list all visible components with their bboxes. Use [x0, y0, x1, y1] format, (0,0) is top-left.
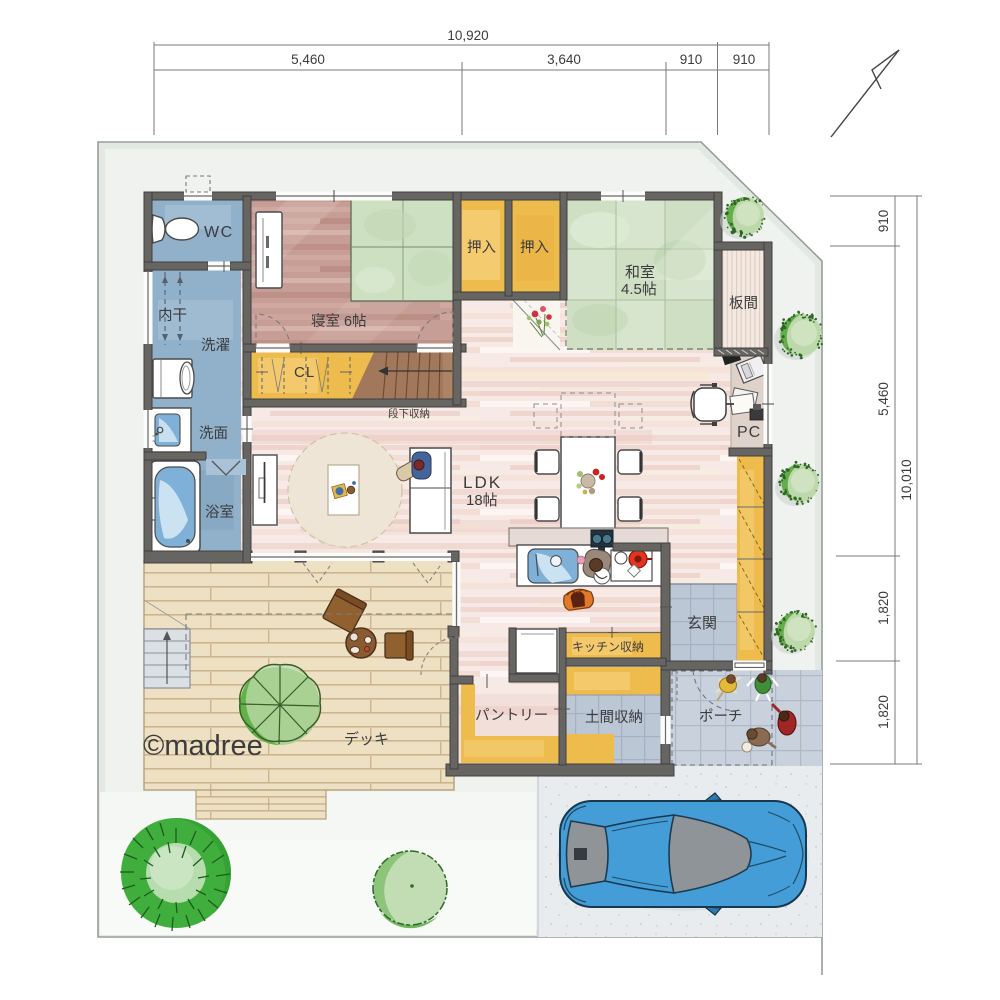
svg-text:1,820: 1,820 [876, 695, 891, 729]
svg-text:CL: CL [294, 364, 315, 381]
svg-text:キッチン収納: キッチン収納 [572, 640, 644, 654]
svg-text:5,460: 5,460 [876, 382, 891, 416]
svg-text:©madree: ©madree [143, 730, 263, 762]
svg-text:18帖: 18帖 [466, 492, 498, 509]
svg-text:LDK: LDK [463, 473, 502, 492]
svg-text:4.5帖: 4.5帖 [621, 281, 657, 298]
svg-text:段下収納: 段下収納 [388, 407, 430, 420]
svg-text:土間収納: 土間収納 [585, 709, 643, 726]
svg-text:910: 910 [680, 52, 703, 67]
svg-text:内干: 内干 [158, 307, 187, 324]
svg-text:5,460: 5,460 [291, 52, 325, 67]
svg-text:910: 910 [733, 52, 756, 67]
svg-text:PC: PC [737, 424, 761, 441]
svg-text:洗面: 洗面 [199, 425, 228, 442]
svg-text:パントリー: パントリー [475, 707, 548, 724]
svg-text:1,820: 1,820 [876, 591, 891, 625]
svg-text:WC: WC [204, 224, 234, 241]
svg-text:浴室: 浴室 [205, 504, 234, 521]
svg-text:押入: 押入 [520, 239, 549, 256]
svg-text:玄関: 玄関 [687, 615, 717, 632]
svg-text:10,010: 10,010 [899, 459, 914, 500]
svg-text:デッキ: デッキ [344, 730, 389, 748]
svg-text:910: 910 [876, 210, 891, 233]
svg-text:ポーチ: ポーチ [699, 708, 743, 725]
svg-text:10,920: 10,920 [447, 28, 488, 43]
svg-text:板間: 板間 [729, 294, 758, 312]
svg-text:押入: 押入 [467, 239, 496, 256]
svg-text:和室: 和室 [625, 264, 655, 281]
svg-text:寝室 6帖: 寝室 6帖 [311, 312, 367, 330]
svg-text:洗濯: 洗濯 [201, 337, 230, 354]
svg-text:3,640: 3,640 [547, 52, 581, 67]
